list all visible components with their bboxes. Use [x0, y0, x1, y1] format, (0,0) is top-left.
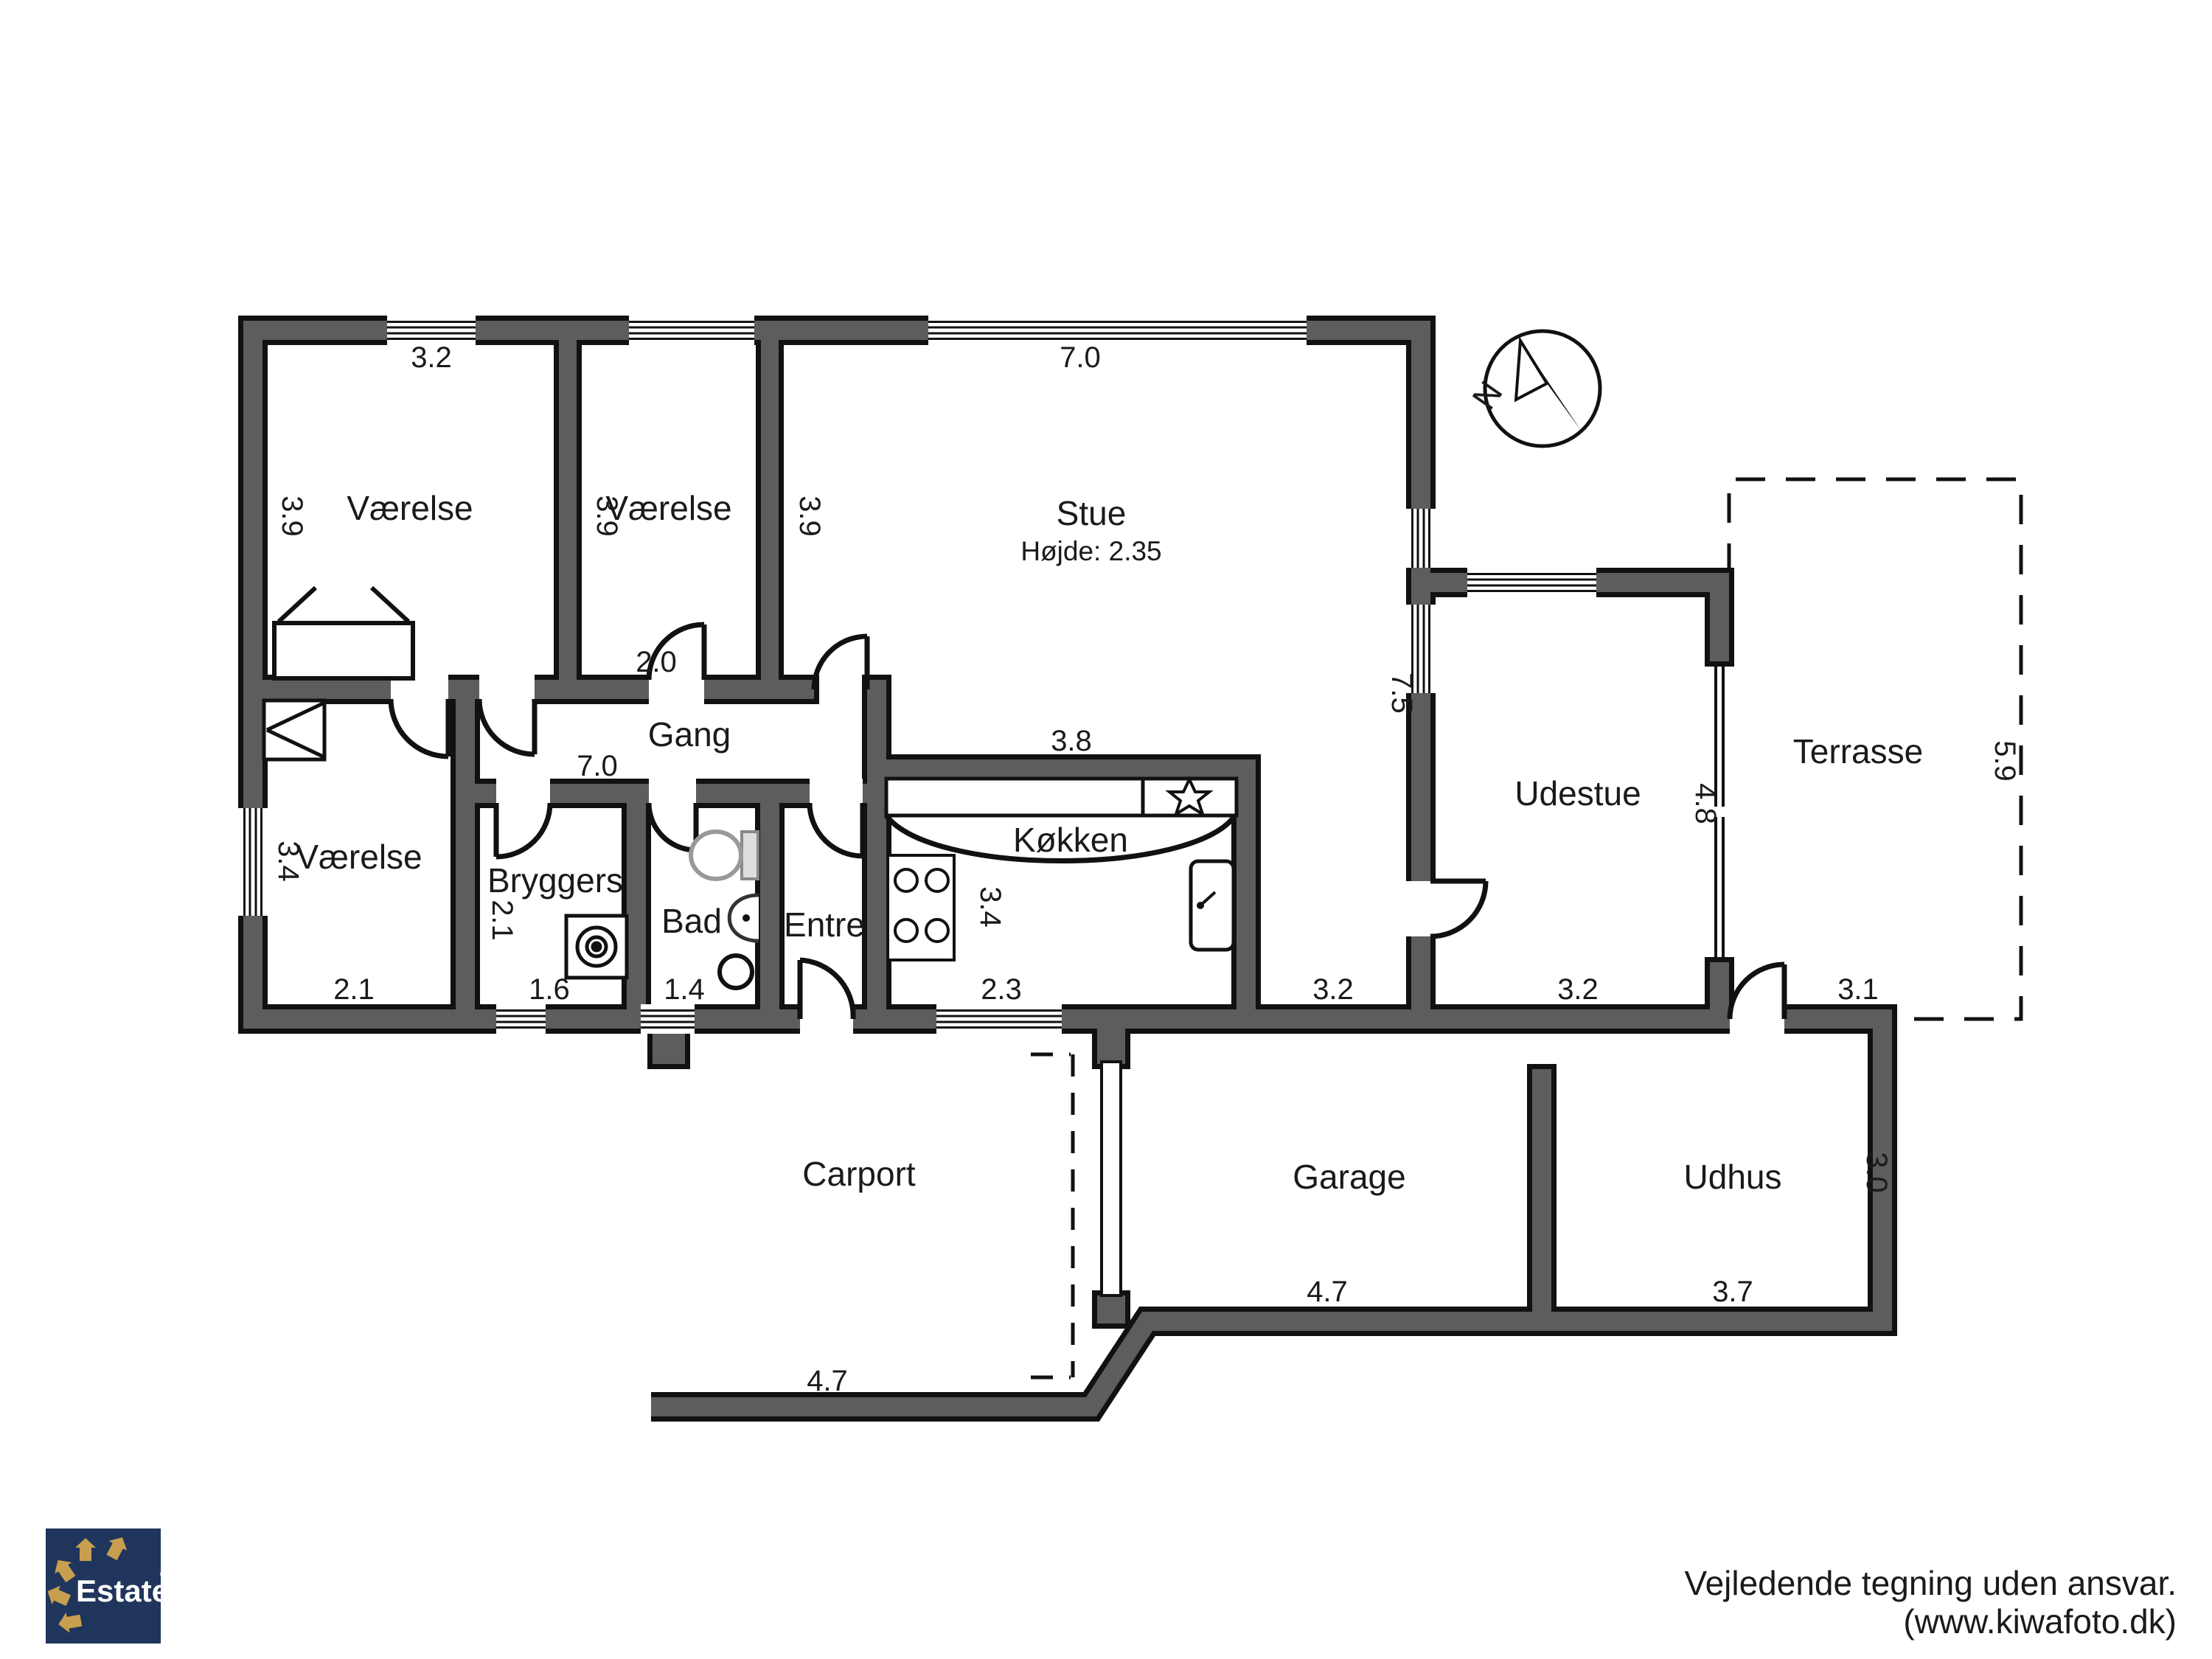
dim-udhus-width: 3.7 — [1712, 1276, 1753, 1308]
compass-icon: N — [1464, 331, 1600, 446]
door-vaerelse3 — [391, 699, 448, 757]
stue-height-note: Højde: 2.35 — [1020, 536, 1161, 566]
door-bryggers — [496, 803, 550, 857]
footer-line2: (www.kiwafoto.dk) — [1903, 1602, 2177, 1641]
floor-drain-icon — [720, 956, 752, 988]
dim-vaerelse3-width: 2.1 — [333, 973, 375, 1006]
dim-stue-depth-right: 7.5 — [1385, 672, 1418, 714]
room-label-bryggers: Bryggers — [487, 861, 623, 900]
wardrobe-icon — [264, 700, 324, 759]
room-label-carport: Carport — [802, 1155, 916, 1193]
room-label-koekken: Køkken — [1013, 821, 1128, 859]
dim-udestue-depth: 4.8 — [1689, 783, 1722, 824]
door-vaerelse1 — [479, 699, 535, 754]
floor-plan-canvas: N Værelse 3.2 3.9 Værelse 3.9 2.0 Stue H… — [0, 0, 2212, 1659]
room-label-gang: Gang — [648, 715, 731, 754]
estate-logo: Estate ® — [44, 1528, 171, 1644]
floor-plan-page: N Værelse 3.2 3.9 Værelse 3.9 2.0 Stue H… — [0, 0, 2212, 1659]
estate-logo-registered: ® — [160, 1567, 171, 1583]
dim-drive-width: 4.7 — [807, 1365, 848, 1397]
dim-stue-depth-left: 3.9 — [793, 495, 826, 537]
bed-icon — [274, 588, 413, 678]
estate-logo-text: Estate — [76, 1573, 169, 1608]
footer: Vejledende tegning uden ansvar. (www.kiw… — [1684, 1564, 2177, 1641]
toilet-icon — [691, 832, 758, 879]
labels-layer: Værelse 3.2 3.9 Værelse 3.9 2.0 Stue Høj… — [272, 341, 2021, 1397]
room-label-garage: Garage — [1293, 1158, 1405, 1196]
bathroom-sink-icon — [729, 895, 759, 941]
dim-koekken-depth: 3.4 — [974, 886, 1006, 928]
door-bad — [649, 803, 696, 850]
room-label-udhus: Udhus — [1684, 1158, 1782, 1196]
dim-stue-bottom: 3.2 — [1312, 973, 1354, 1006]
room-label-udestue: Udestue — [1514, 774, 1641, 813]
dim-vaerelse3-depth: 3.4 — [272, 841, 305, 882]
dim-gang-width: 7.0 — [577, 750, 618, 782]
room-label-bad: Bad — [661, 902, 722, 940]
cooktop-icon — [888, 855, 954, 960]
dim-terrasse-depth: 5.9 — [1989, 740, 2021, 782]
dim-stue-width: 7.0 — [1060, 341, 1101, 374]
garage-door — [1102, 1062, 1121, 1295]
dim-koekken-width: 2.3 — [981, 973, 1022, 1006]
room-label-entre: Entre — [784, 905, 865, 944]
dim-bryggers-width: 1.6 — [529, 973, 570, 1006]
dim-terrasse-bottom: 3.1 — [1837, 973, 1879, 1006]
dim-udestue-width: 3.2 — [1557, 973, 1599, 1006]
dim-bad-width: 1.4 — [664, 973, 705, 1006]
door-entre — [810, 803, 863, 856]
washing-machine-icon — [566, 916, 627, 978]
kitchen-sink-icon — [1191, 861, 1234, 950]
room-label-vaerelse2: Værelse — [605, 489, 731, 527]
dim-garage-width: 4.7 — [1307, 1276, 1348, 1308]
dim-vaerelse1-width: 3.2 — [411, 341, 452, 374]
dim-vaerelse1-depth: 3.9 — [276, 495, 308, 537]
room-label-vaerelse1: Værelse — [347, 489, 473, 527]
dim-udhus-depth: 3.0 — [1860, 1152, 1893, 1193]
room-label-stue: Stue — [1057, 494, 1127, 532]
door-udestue — [1430, 881, 1486, 936]
room-label-terrasse: Terrasse — [1793, 732, 1923, 771]
dim-vaerelse2-width: 2.0 — [636, 646, 677, 678]
footer-line1: Vejledende tegning uden ansvar. — [1684, 1564, 2177, 1602]
dim-vaerelse2-depth: 3.9 — [591, 495, 623, 537]
room-label-vaerelse3: Værelse — [296, 838, 422, 876]
dim-bryggers-depth: 2.1 — [486, 900, 518, 941]
door-stue — [814, 636, 867, 689]
dim-koekken-top: 3.8 — [1051, 725, 1092, 757]
